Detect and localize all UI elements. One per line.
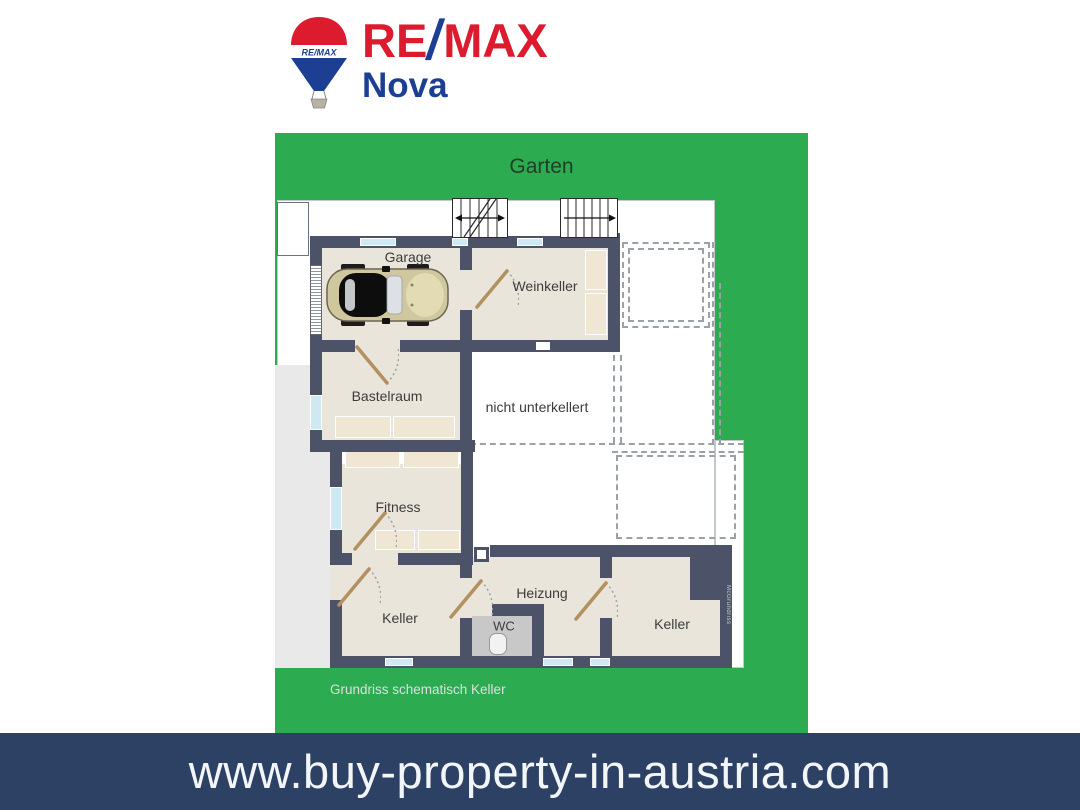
website-banner: www.buy-property-in-austria.com bbox=[0, 733, 1080, 810]
chimney-notch bbox=[536, 342, 550, 350]
dashed-line bbox=[620, 355, 622, 443]
dashed-line bbox=[719, 283, 721, 445]
window bbox=[310, 395, 322, 430]
plan-caption: Grundriss schematisch Keller bbox=[330, 682, 506, 697]
garden-label: Garten bbox=[275, 155, 808, 179]
brand-re: RE bbox=[362, 14, 427, 67]
office-name: Nova bbox=[362, 67, 548, 105]
remax-balloon-icon: RE/MAX bbox=[286, 14, 352, 114]
room-label-fitness: Fitness bbox=[375, 499, 420, 515]
flyer: RE/MAX RE/MAX Nova Garten bbox=[0, 0, 1080, 810]
dashed-outline bbox=[628, 248, 704, 322]
remax-logo: RE/MAX RE/MAX Nova bbox=[286, 14, 548, 114]
room-label-wc: WC bbox=[493, 619, 515, 634]
dashed-line bbox=[470, 443, 744, 445]
wall bbox=[532, 604, 544, 656]
stairs-icon bbox=[452, 198, 508, 238]
room-label-bastelraum: Bastelraum bbox=[352, 388, 423, 404]
dashed-line bbox=[712, 242, 714, 445]
balloon-text: RE/MAX bbox=[301, 48, 337, 58]
dashed-line bbox=[612, 451, 744, 453]
window bbox=[452, 238, 468, 246]
furniture bbox=[335, 416, 391, 438]
brand-wordmark: RE/MAX bbox=[362, 14, 548, 67]
dashed-outline bbox=[616, 455, 736, 539]
car-icon bbox=[325, 263, 450, 327]
vertical-watermark: McGrundriss bbox=[719, 585, 731, 657]
stairs-icon bbox=[560, 198, 618, 238]
window bbox=[517, 238, 543, 246]
room-label-weinkeller: Weinkeller bbox=[512, 278, 577, 294]
garden-area: Garten bbox=[275, 133, 808, 733]
wall bbox=[608, 233, 620, 352]
door-swing-icon bbox=[351, 343, 399, 391]
room-label-keller-right: Keller bbox=[654, 616, 690, 632]
shelf bbox=[585, 250, 607, 290]
window bbox=[385, 658, 413, 666]
door-swing-icon bbox=[333, 561, 381, 609]
room-label-heizung: Heizung bbox=[516, 585, 567, 601]
light-shaft bbox=[277, 202, 309, 256]
door-swing-icon bbox=[570, 575, 618, 623]
wall bbox=[460, 352, 472, 452]
room-label-keller-left: Keller bbox=[382, 610, 418, 626]
furniture bbox=[403, 450, 459, 468]
wall bbox=[461, 452, 473, 565]
furniture bbox=[345, 450, 400, 468]
furniture bbox=[418, 530, 460, 550]
website-url[interactable]: www.buy-property-in-austria.com bbox=[189, 744, 891, 799]
furniture bbox=[393, 416, 455, 438]
shaft-notch bbox=[474, 547, 489, 562]
dashed-line bbox=[613, 355, 615, 443]
window bbox=[330, 487, 342, 530]
boiler-icon bbox=[489, 633, 507, 655]
brand-max: MAX bbox=[443, 14, 547, 67]
room-label-garage: Garage bbox=[385, 249, 432, 265]
shelf bbox=[585, 293, 607, 335]
garage-door bbox=[310, 265, 322, 335]
room-label-nicht-unterkellert: nicht unterkellert bbox=[486, 399, 589, 415]
window bbox=[543, 658, 573, 666]
window bbox=[590, 658, 610, 666]
wall bbox=[310, 440, 475, 452]
window bbox=[360, 238, 396, 246]
door-swing-icon bbox=[445, 573, 493, 621]
